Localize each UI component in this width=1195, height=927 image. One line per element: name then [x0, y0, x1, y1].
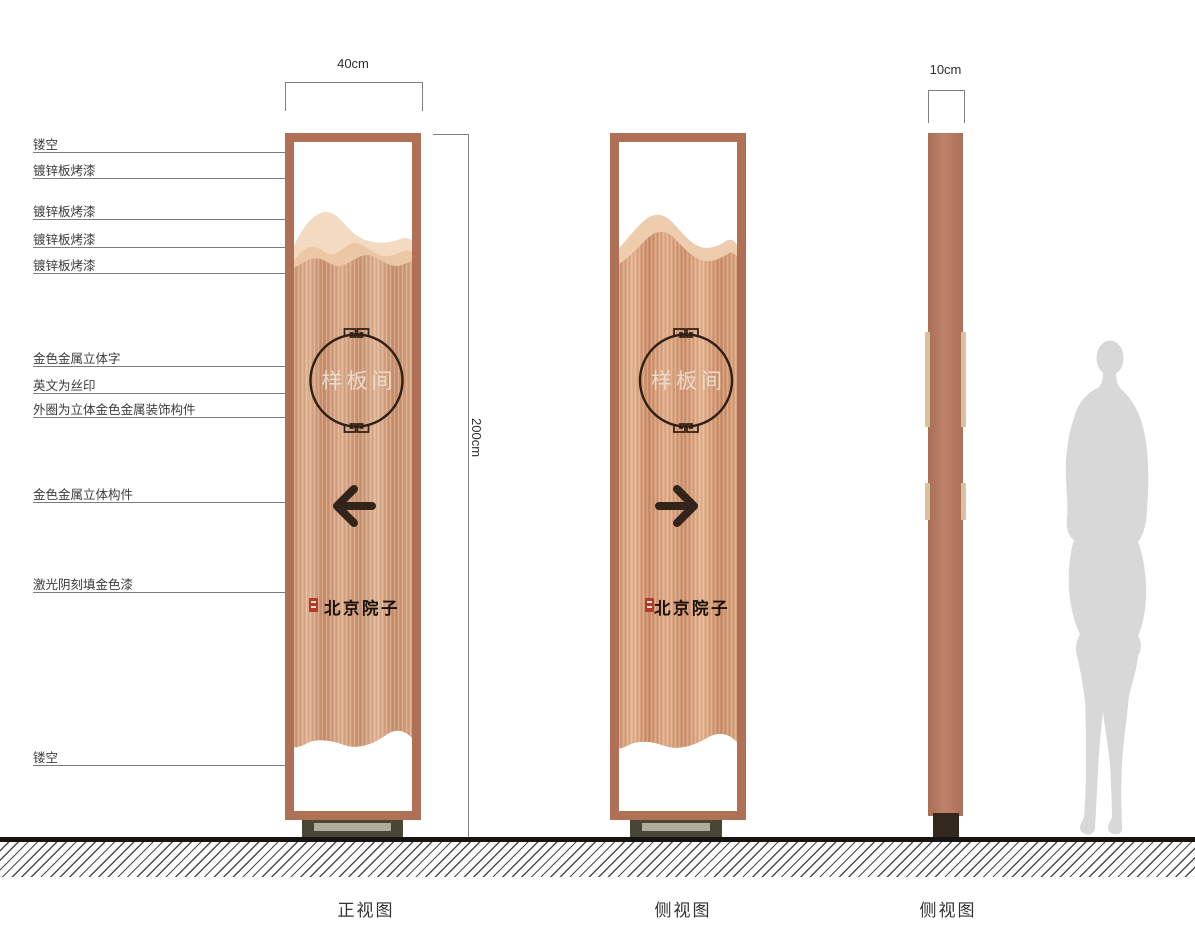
callout-line: [33, 247, 291, 248]
profile-base-stand: [933, 813, 959, 838]
front-brand-text: 北京院子: [324, 598, 400, 618]
side-seal-mark: [647, 601, 652, 603]
callout-label: 镀锌板烤漆: [33, 255, 96, 274]
height-dimension-label: 200cm: [469, 418, 484, 457]
callout-label: 金色金属立体字: [33, 348, 121, 367]
callout-label: 外圈为立体金色金属装饰构件: [33, 399, 196, 418]
profile-arrow-protrusion-left: [925, 483, 930, 520]
caption-front-view: 正视图: [298, 896, 434, 921]
callout-label: 金色金属立体构件: [33, 484, 133, 503]
profile-arrow-protrusion-right: [961, 483, 966, 520]
front-face-graphic: 样板间 北京院子: [294, 142, 412, 811]
drawing-canvas: 镂空镀锌板烤漆镀锌板烤漆镀锌板烤漆镀锌板烤漆金色金属立体字英文为丝印外圈为立体金…: [0, 0, 1195, 927]
front-panel-text: 样板间: [322, 370, 397, 393]
callout-label: 镀锌板烤漆: [33, 201, 96, 220]
profile-view-pillar: [928, 133, 963, 816]
width-dimension-bracket: [285, 82, 423, 111]
callout-line: [33, 219, 321, 220]
side-brand-text: 北京院子: [654, 598, 730, 618]
depth-dimension-label: 10cm: [910, 62, 981, 77]
callout-label: 镂空: [33, 134, 58, 153]
human-scale-silhouette: [1050, 338, 1162, 838]
front-base-stand: [302, 820, 403, 838]
front-view-pillar: 样板间 北京院子: [285, 133, 421, 820]
height-dimension-tick: [433, 134, 468, 135]
callout-line: [33, 765, 302, 766]
side-seal-mark: [647, 606, 652, 608]
height-dimension-line: [468, 134, 469, 837]
side-panel-text: 样板间: [651, 370, 726, 393]
profile-circle-protrusion-left: [925, 332, 930, 427]
callout-line: [33, 152, 302, 153]
depth-dimension-bracket: [928, 90, 965, 123]
caption-profile-view: 侧视图: [880, 896, 1016, 921]
callout-label: 镀锌板烤漆: [33, 160, 96, 179]
caption-side-view: 侧视图: [615, 896, 751, 921]
side-view-pillar: 样板间 北京院子: [610, 133, 746, 820]
side-seal-stamp-icon: [645, 598, 654, 612]
callout-line: [33, 592, 318, 593]
callout-label: 镀锌板烤漆: [33, 229, 96, 248]
callout-label: 激光阴刻填金色漆: [33, 574, 133, 593]
side-face-graphic: 样板间 北京院子: [619, 142, 737, 811]
front-base-slot: [314, 823, 391, 831]
width-dimension-label: 40cm: [285, 56, 421, 71]
ground-hatching: [0, 842, 1195, 877]
callout-label: 镂空: [33, 747, 58, 766]
front-seal-mark: [311, 606, 316, 608]
front-seal-stamp-icon: [309, 598, 318, 612]
callout-line: [33, 273, 290, 274]
side-base-slot: [642, 823, 710, 831]
callout-label: 英文为丝印: [33, 375, 96, 394]
side-base-stand: [630, 820, 722, 838]
profile-circle-protrusion-right: [961, 332, 966, 427]
front-seal-mark: [311, 601, 316, 603]
callout-line: [33, 178, 286, 179]
